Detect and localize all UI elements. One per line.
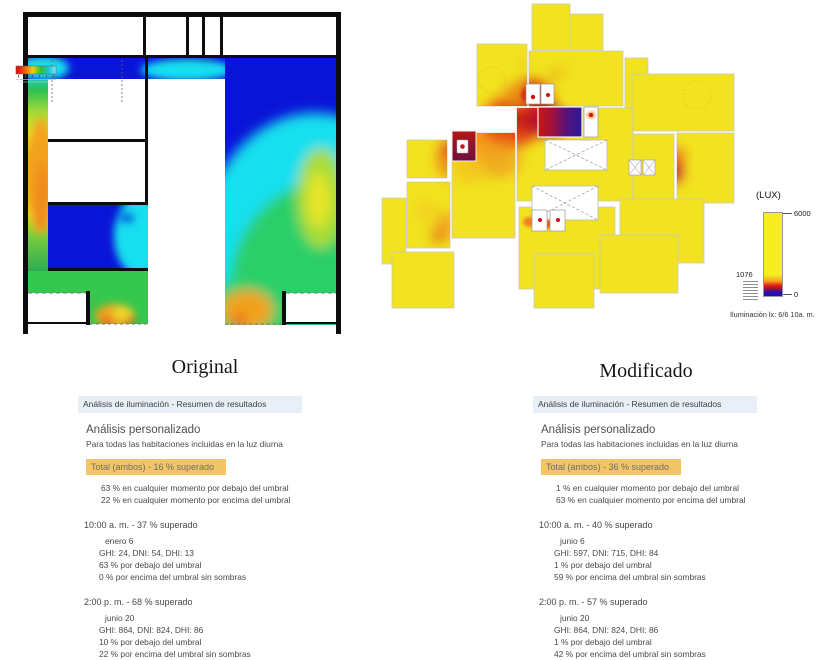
lux-caption: Iluminación lx: 6/6 10a. m.: [730, 310, 815, 319]
modified-heatmap: [380, 0, 740, 320]
lux-max-label: 6000: [794, 209, 811, 218]
above-line: 0 % por encima del umbral sin sombras: [99, 571, 302, 583]
figure-title-modified: Modificado: [531, 360, 761, 383]
below-line: 63 % por debajo del umbral: [99, 559, 302, 571]
above-threshold-line: 22 % en cualquier momento por encima del…: [101, 494, 302, 506]
below-line: 1 % por debajo del umbral: [554, 636, 757, 648]
date-line: junio 6: [560, 535, 757, 547]
time-header: 10:00 a. m. - 37 % superado: [84, 520, 302, 530]
modified-heatmap-svg: [380, 0, 740, 320]
summary-panel-modified: Análisis de iluminación - Resumen de res…: [533, 396, 757, 660]
below-threshold-line: 1 % en cualquier momento por debajo del …: [556, 482, 757, 494]
below-line: 10 % por debajo del umbral: [99, 636, 302, 648]
bathroom-dark: [452, 131, 476, 161]
analysis-description: Para todas las habitaciones incluidas en…: [86, 439, 302, 449]
original-heatmap: [15, 8, 345, 350]
mini-colorbar-legend: [16, 66, 56, 82]
total-highlight: Total (ambos) - 36 % superado: [541, 459, 681, 475]
total-highlight: Total (ambos) - 16 % superado: [86, 459, 226, 475]
bathrooms-top: [521, 84, 554, 105]
irradiance-line: GHI: 864, DNI: 824, DHI: 86: [554, 624, 757, 636]
analysis-subtitle: Análisis personalizado: [541, 424, 757, 436]
original-heatmap-svg: [15, 8, 345, 350]
lux-colorbar: [763, 212, 783, 297]
time-section-10am: 10:00 a. m. - 40 % superado junio 6 GHI:…: [533, 520, 757, 583]
results-header: Análisis de iluminación - Resumen de res…: [78, 396, 302, 413]
irradiance-line: GHI: 597, DNI: 715, DHI: 84: [554, 547, 757, 559]
time-section-2pm: 2:00 p. m. - 68 % superado junio 20 GHI:…: [78, 597, 302, 660]
irradiance-line: GHI: 24, DNI: 54, DHI: 13: [99, 547, 302, 559]
time-header: 10:00 a. m. - 40 % superado: [539, 520, 757, 530]
above-line: 59 % por encima del umbral sin sombras: [554, 571, 757, 583]
lux-threshold-hatch: [743, 281, 758, 302]
lux-min-tick: [783, 294, 792, 295]
analysis-description: Para todas las habitaciones incluidas en…: [541, 439, 757, 449]
date-line: junio 20: [560, 612, 757, 624]
lux-legend-title: (LUX): [756, 190, 781, 201]
analysis-subtitle: Análisis personalizado: [86, 424, 302, 436]
date-line: junio 20: [105, 612, 302, 624]
dark-room: [538, 107, 598, 137]
irradiance-line: GHI: 864, DNI: 824, DHI: 86: [99, 624, 302, 636]
above-line: 42 % por encima del umbral sin sombras: [554, 648, 757, 660]
figure-title-original: Original: [90, 356, 320, 379]
results-header: Análisis de iluminación - Resumen de res…: [533, 396, 757, 413]
below-line: 1 % por debajo del umbral: [554, 559, 757, 571]
time-header: 2:00 p. m. - 57 % superado: [539, 597, 757, 607]
above-threshold-line: 63 % en cualquier momento por encima del…: [556, 494, 757, 506]
lux-max-tick: [783, 213, 792, 214]
lux-min-label: 0: [794, 290, 798, 299]
lux-legend: (LUX) 6000 0 1076 Iluminación lx: 6/6 10…: [730, 190, 827, 332]
below-threshold-line: 63 % en cualquier momento por debajo del…: [101, 482, 302, 494]
date-line: enero 6: [105, 535, 302, 547]
summary-panel-original: Análisis de iluminación - Resumen de res…: [78, 396, 302, 660]
above-line: 22 % por encima del umbral sin sombras: [99, 648, 302, 660]
lux-threshold-label: 1076: [736, 270, 753, 279]
time-section-2pm: 2:00 p. m. - 57 % superado junio 20 GHI:…: [533, 597, 757, 660]
time-header: 2:00 p. m. - 68 % superado: [84, 597, 302, 607]
time-section-10am: 10:00 a. m. - 37 % superado enero 6 GHI:…: [78, 520, 302, 583]
